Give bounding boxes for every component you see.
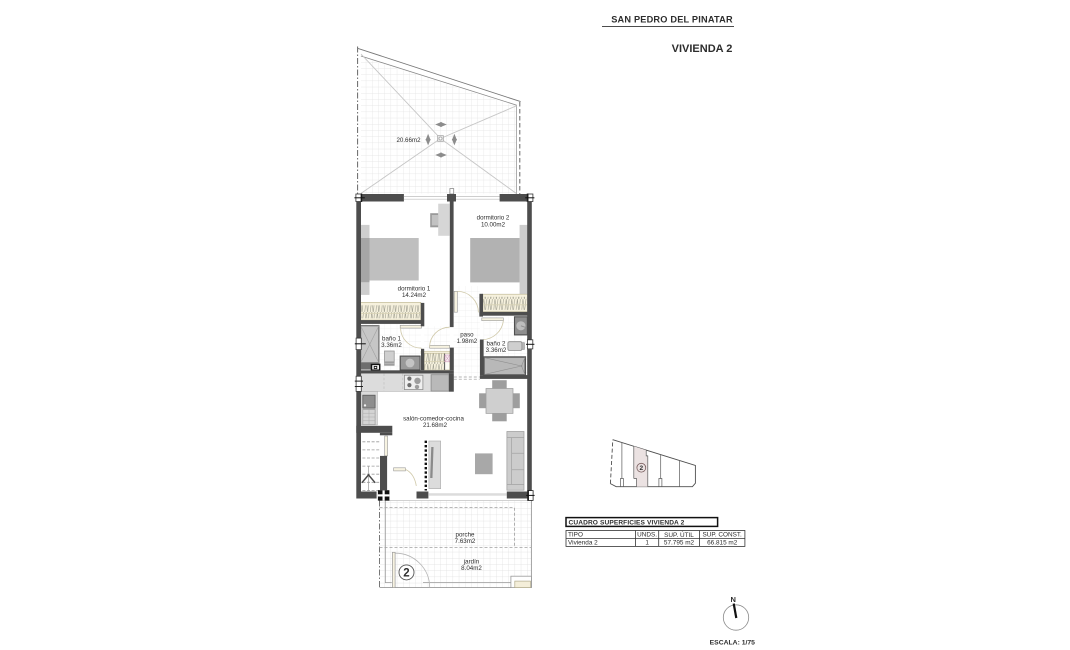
svg-text:7.63m2: 7.63m2 bbox=[455, 538, 476, 545]
svg-text:SAN PEDRO DEL PINATAR: SAN PEDRO DEL PINATAR bbox=[611, 15, 733, 25]
svg-text:2: 2 bbox=[639, 465, 643, 472]
svg-text:SUP. ÚTIL: SUP. ÚTIL bbox=[664, 530, 694, 539]
svg-text:1.98m2: 1.98m2 bbox=[457, 338, 478, 345]
svg-text:57.795 m2: 57.795 m2 bbox=[664, 539, 695, 546]
svg-text:21.68m2: 21.68m2 bbox=[423, 422, 448, 429]
svg-text:CUADRO SUPERFICIES VIVIENDA 2: CUADRO SUPERFICIES VIVIENDA 2 bbox=[569, 519, 685, 526]
svg-text:VIVIENDA 2: VIVIENDA 2 bbox=[672, 43, 733, 55]
svg-text:Vivienda 2: Vivienda 2 bbox=[568, 539, 598, 546]
svg-text:UNDS.: UNDS. bbox=[637, 532, 657, 539]
svg-text:8.04m2: 8.04m2 bbox=[461, 565, 482, 572]
svg-text:66.815 m2: 66.815 m2 bbox=[707, 539, 738, 546]
svg-text:SUP. CONST.: SUP. CONST. bbox=[703, 532, 743, 539]
svg-text:TIPO: TIPO bbox=[568, 532, 583, 539]
svg-text:3.36m2: 3.36m2 bbox=[486, 347, 507, 354]
svg-text:2: 2 bbox=[403, 568, 409, 580]
svg-text:3.36m2: 3.36m2 bbox=[381, 342, 402, 349]
svg-text:20.66m2: 20.66m2 bbox=[396, 137, 421, 144]
svg-text:10.00m2: 10.00m2 bbox=[481, 221, 506, 228]
svg-text:1: 1 bbox=[645, 539, 649, 546]
svg-text:14.24m2: 14.24m2 bbox=[402, 292, 427, 299]
svg-text:ESCALA: 1/75: ESCALA: 1/75 bbox=[710, 640, 756, 647]
svg-text:N: N bbox=[730, 595, 735, 604]
